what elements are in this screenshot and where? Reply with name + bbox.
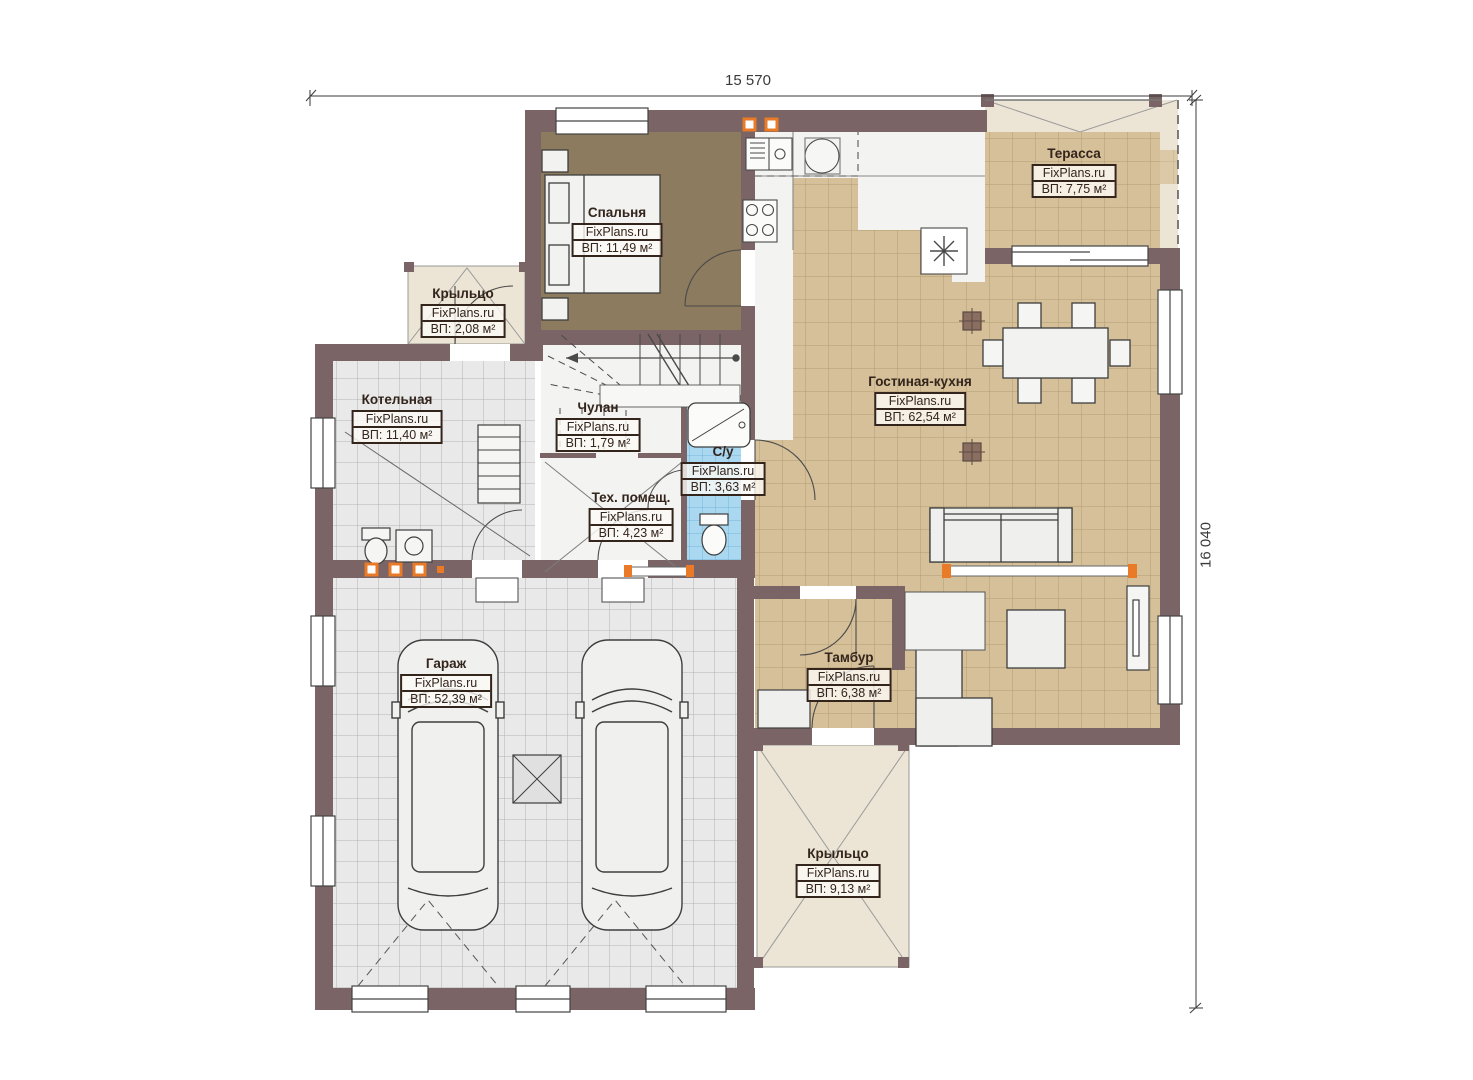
- vestibule-cabinet: [758, 690, 810, 728]
- room-label-terrace: Терасса FixPlans.ruВП: 7,75 м²: [1032, 146, 1117, 198]
- car: [576, 640, 688, 930]
- floor-plan: 15 570 16 040 Спальня FixPlans.ruВП: 11,…: [0, 0, 1473, 1080]
- bathtub: [688, 403, 750, 447]
- room-label-bathroom: С/у FixPlans.ruВП: 3,63 м²: [681, 444, 766, 496]
- toilet: [700, 514, 728, 555]
- floor-plan-drawing: [0, 0, 1473, 1080]
- room-label-closet: Чулан FixPlans.ruВП: 1,79 м²: [556, 400, 641, 452]
- room-label-tech-room: Тех. помещ. FixPlans.ruВП: 4,23 м²: [589, 490, 674, 542]
- room-label-vestibule: Тамбур FixPlans.ruВП: 6,38 м²: [807, 650, 892, 702]
- room-label-porch-top: Крыльцо FixPlans.ruВП: 2,08 м²: [421, 286, 506, 338]
- room-label-bedroom: Спальня FixPlans.ruВП: 11,49 м²: [572, 205, 663, 257]
- room-label-living-kitchen: Гостиная-кухня FixPlans.ruВП: 62,54 м²: [868, 374, 971, 426]
- room-label-boiler: Котельная FixPlans.ruВП: 11,40 м²: [352, 392, 443, 444]
- dimension-height: 16 040: [1198, 522, 1215, 568]
- sofa-top: [930, 508, 1072, 562]
- radiator: [942, 564, 1137, 578]
- closet: [905, 592, 985, 650]
- floor-drain: [513, 755, 561, 803]
- radiator: [624, 565, 694, 577]
- coffee-table: [1007, 610, 1065, 668]
- room-label-garage: Гараж FixPlans.ruВП: 52,39 м²: [400, 656, 492, 708]
- dimension-width: 15 570: [700, 72, 796, 89]
- tv-stand: [1127, 586, 1149, 670]
- room-label-porch-bottom: Крыльцо FixPlans.ruВП: 9,13 м²: [796, 846, 881, 898]
